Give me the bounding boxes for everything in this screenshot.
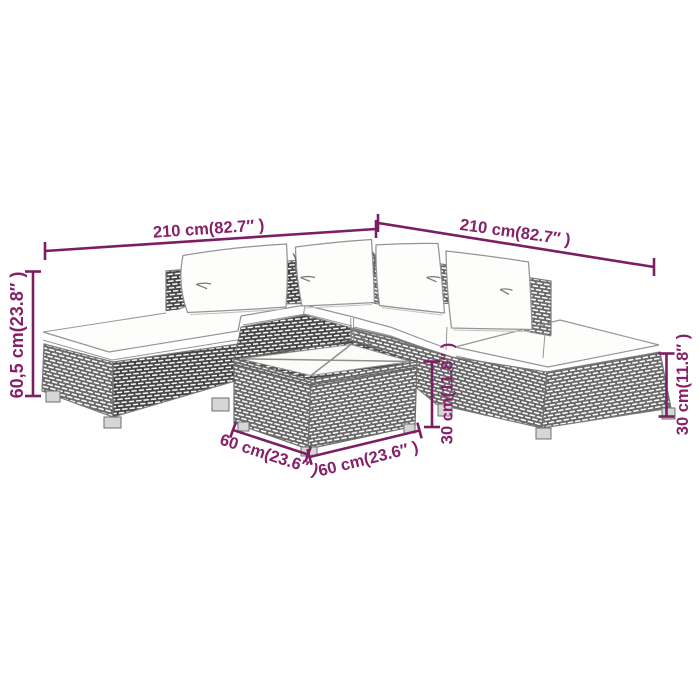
svg-text:30 cm(11.8″ ): 30 cm(11.8″ ) bbox=[439, 343, 457, 444]
svg-text:60,5 cm(23.8″ ): 60,5 cm(23.8″ ) bbox=[7, 272, 27, 399]
svg-text:30 cm(11.8″ ): 30 cm(11.8″ ) bbox=[674, 334, 692, 435]
